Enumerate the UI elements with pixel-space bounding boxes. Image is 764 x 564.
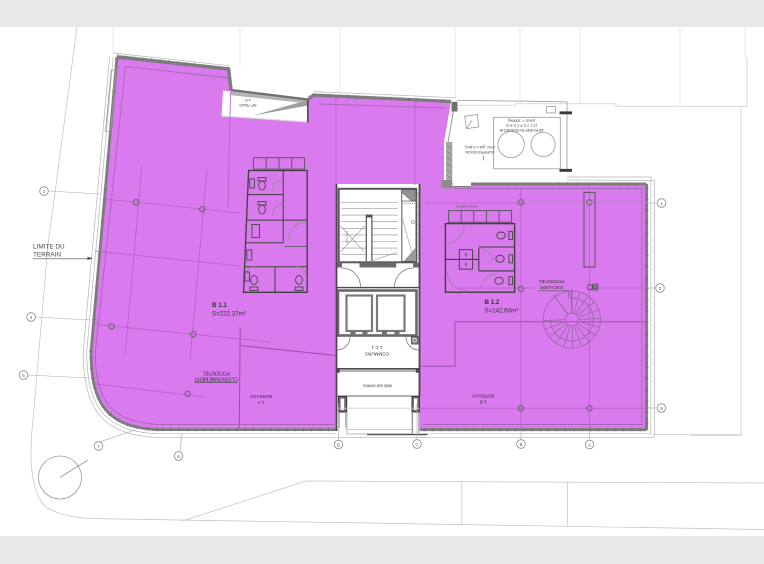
svg-text:2: 2 [43, 189, 46, 194]
svg-text:ESCALIER: ESCALIER [539, 285, 562, 290]
svg-text:BUREAUX: BUREAUX [250, 394, 272, 399]
svg-text:LIMITE DU: LIMITE DU [33, 244, 65, 251]
svg-text:1: 1 [660, 201, 663, 206]
svg-text:poids = 1000kg: poids = 1000kg [508, 119, 535, 124]
svg-text:3: 3 [659, 286, 662, 291]
svg-text:POTENTIEL: POTENTIEL [202, 369, 230, 375]
svg-text:TERRAIN: TERRAIN [33, 252, 61, 259]
svg-text:ESC (p6 x 0.8m): ESC (p6 x 0.8m) [465, 145, 495, 150]
svg-text:16x17/28: 16x17/28 [345, 231, 349, 244]
svg-text:4: 4 [30, 315, 33, 320]
svg-text:vide sur entrée: vide sur entrée [362, 384, 392, 389]
svg-text:1 B: 1 B [480, 400, 487, 405]
svg-text:CLOISONNEMENT: CLOISONNEMENT [194, 376, 238, 382]
svg-text:± 0: ± 0 [244, 98, 250, 103]
svg-text:BUREAUX: BUREAUX [472, 394, 494, 399]
svg-text:B 1.2: B 1.2 [485, 299, 500, 306]
svg-text:7: 7 [97, 444, 100, 449]
svg-text:COMMUNS: COMMUNS [365, 352, 389, 357]
svg-text:6: 6 [177, 454, 180, 459]
svg-text:1 C 1: 1 C 1 [371, 345, 382, 350]
svg-text:5: 5 [660, 406, 663, 411]
svg-text:5: 5 [22, 373, 25, 378]
svg-text:POTENTIEL: POTENTIEL [538, 279, 564, 284]
svg-text:S=222.37m²: S=222.37m² [212, 311, 246, 318]
svg-text:B: B [519, 442, 522, 447]
svg-text:1 A: 1 A [257, 400, 265, 405]
svg-text:B 1.1: B 1.1 [212, 302, 227, 309]
svg-text:S=142.60m²: S=142.60m² [485, 308, 519, 315]
svg-text:ALIMENTATION: ALIMENTATION [456, 205, 478, 209]
